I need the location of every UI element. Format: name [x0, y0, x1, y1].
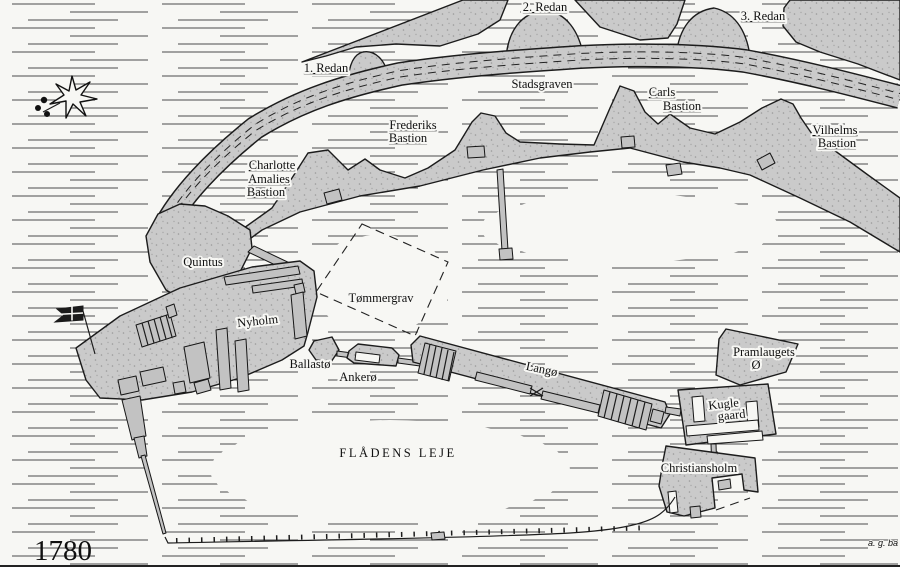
label-carls-bastion-line2: Bastion — [663, 99, 702, 113]
label-frederiks-bastion-line1: Frederiks — [389, 118, 436, 132]
label-year: 1780 — [34, 535, 92, 567]
label-frederiks-bastion-line2: Bastion — [389, 131, 428, 145]
label-signature: a. g. ba — [868, 538, 898, 548]
label-charlotte-amalies-line2: Amalies — [248, 172, 290, 186]
label-ballasto: Ballastø — [290, 357, 331, 371]
label-kugle-gaard-line2: gaard — [717, 407, 747, 424]
label-stadsgraven: Stadsgraven — [511, 77, 573, 91]
label-pramlaugets-o-line1: Pramlaugets — [733, 345, 795, 359]
label-carls-bastion-line1: Carls — [649, 85, 676, 99]
map-page: 1. Redan2. Redan3. RedanStadsgravenCarls… — [0, 0, 900, 567]
label-redan-1: 1. Redan — [304, 61, 349, 75]
label-redan-2: 2. Redan — [523, 0, 568, 14]
label-pramlaugets-o-line2: Ø — [751, 358, 760, 372]
label-charlotte-amalies-line3: Bastion — [247, 185, 286, 199]
label-christiansholm: Christiansholm — [661, 461, 738, 475]
label-vilhelms-bastion-line1: Vilhelms — [812, 123, 857, 137]
label-charlotte-amalies-line1: Charlotte — [249, 158, 296, 172]
label-fladens-leje: FLÅDENS LEJE — [339, 446, 456, 460]
label-tommergrav: Tømmergrav — [348, 291, 414, 305]
historical-map-holmen: 1. Redan2. Redan3. RedanStadsgravenCarls… — [0, 0, 900, 567]
label-redan-3: 3. Redan — [741, 9, 786, 23]
label-quintus: Quintus — [183, 255, 223, 269]
label-vilhelms-bastion-line2: Bastion — [818, 136, 857, 150]
label-ankero: Ankerø — [339, 370, 377, 384]
